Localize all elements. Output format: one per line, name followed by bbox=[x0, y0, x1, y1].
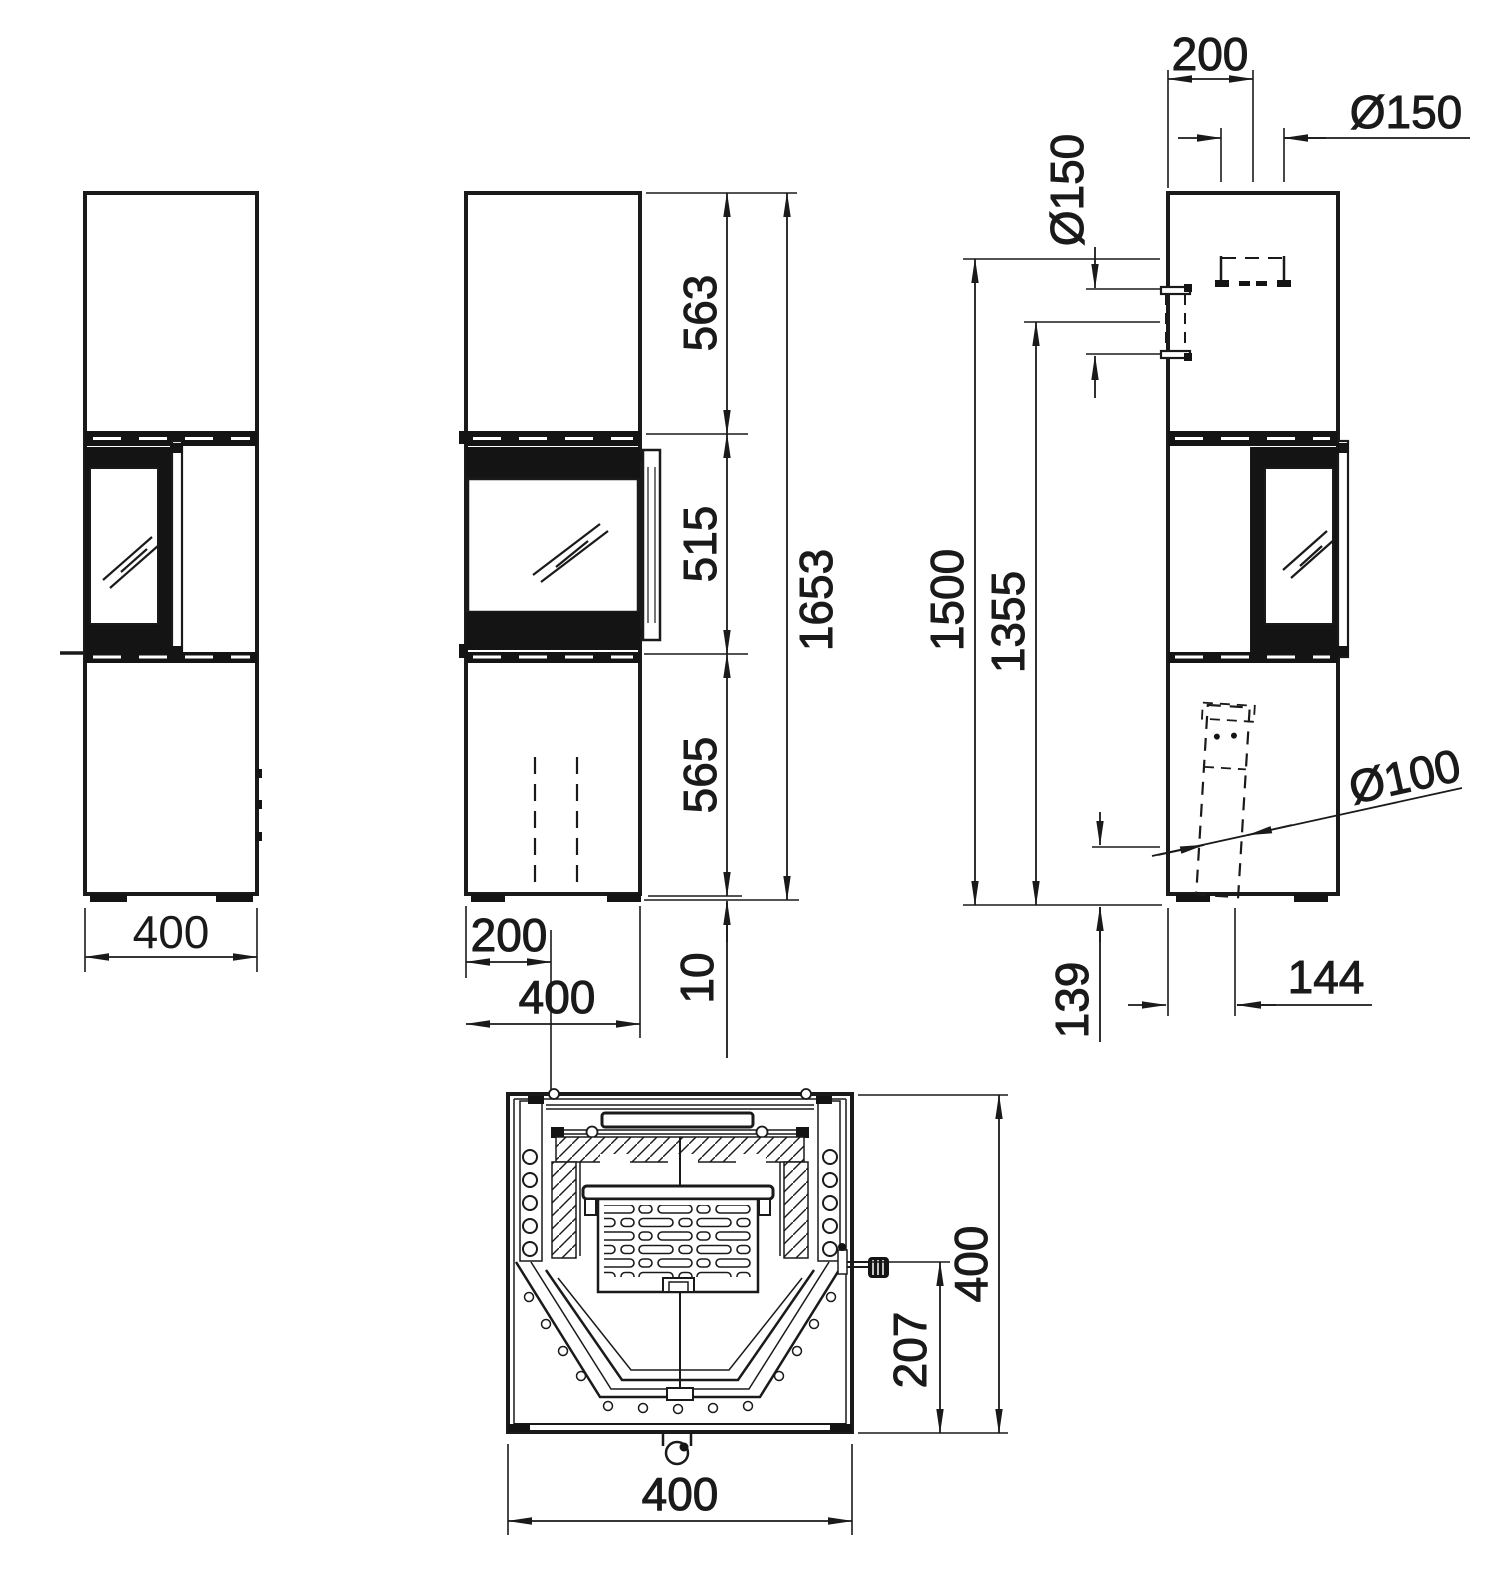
door-bottom-band bbox=[466, 612, 640, 650]
dim-front-total-height: 1653 bbox=[790, 549, 842, 651]
dim-section-width: 400 bbox=[642, 1468, 719, 1520]
technical-drawing-sheet: 400 bbox=[0, 0, 1500, 1584]
dim-side-air-inlet-offset: 144 bbox=[1288, 951, 1365, 1003]
door-top-band bbox=[466, 447, 640, 479]
perforated-back-plate bbox=[583, 1186, 773, 1292]
stove-dimensional-drawing: 400 bbox=[0, 0, 1500, 1584]
door-glass-side bbox=[1265, 468, 1333, 624]
dim-section-depth: 400 bbox=[945, 1226, 997, 1303]
dim-side-top-flue-diameter: Ø150 bbox=[1350, 86, 1463, 138]
dim-section-handle: 207 bbox=[884, 1312, 936, 1389]
dim-front-door-section: 515 bbox=[674, 506, 726, 583]
dim-side-height-1500: 1500 bbox=[921, 549, 973, 651]
dim-side-height-1355: 1355 bbox=[982, 571, 1034, 673]
dim-side-flue-offset: 200 bbox=[1172, 28, 1249, 80]
dim-front-top-section: 563 bbox=[674, 275, 726, 352]
door-glass-side bbox=[90, 468, 158, 624]
left-side-elevation: 400 bbox=[60, 193, 262, 972]
dim-front-plinth: 10 bbox=[671, 952, 723, 1003]
dim-left-width: 400 bbox=[133, 906, 210, 958]
dim-front-width: 400 bbox=[519, 971, 596, 1023]
door-edge-strip bbox=[172, 441, 182, 657]
dim-front-half-width: 200 bbox=[471, 909, 548, 961]
dim-side-rear-flue-diameter: Ø150 bbox=[1041, 134, 1093, 247]
dim-front-base-section: 565 bbox=[674, 737, 726, 814]
dim-side-air-inlet-height: 139 bbox=[1046, 962, 1098, 1039]
door-glass-front bbox=[468, 479, 638, 612]
door-edge-strip bbox=[1338, 441, 1348, 657]
